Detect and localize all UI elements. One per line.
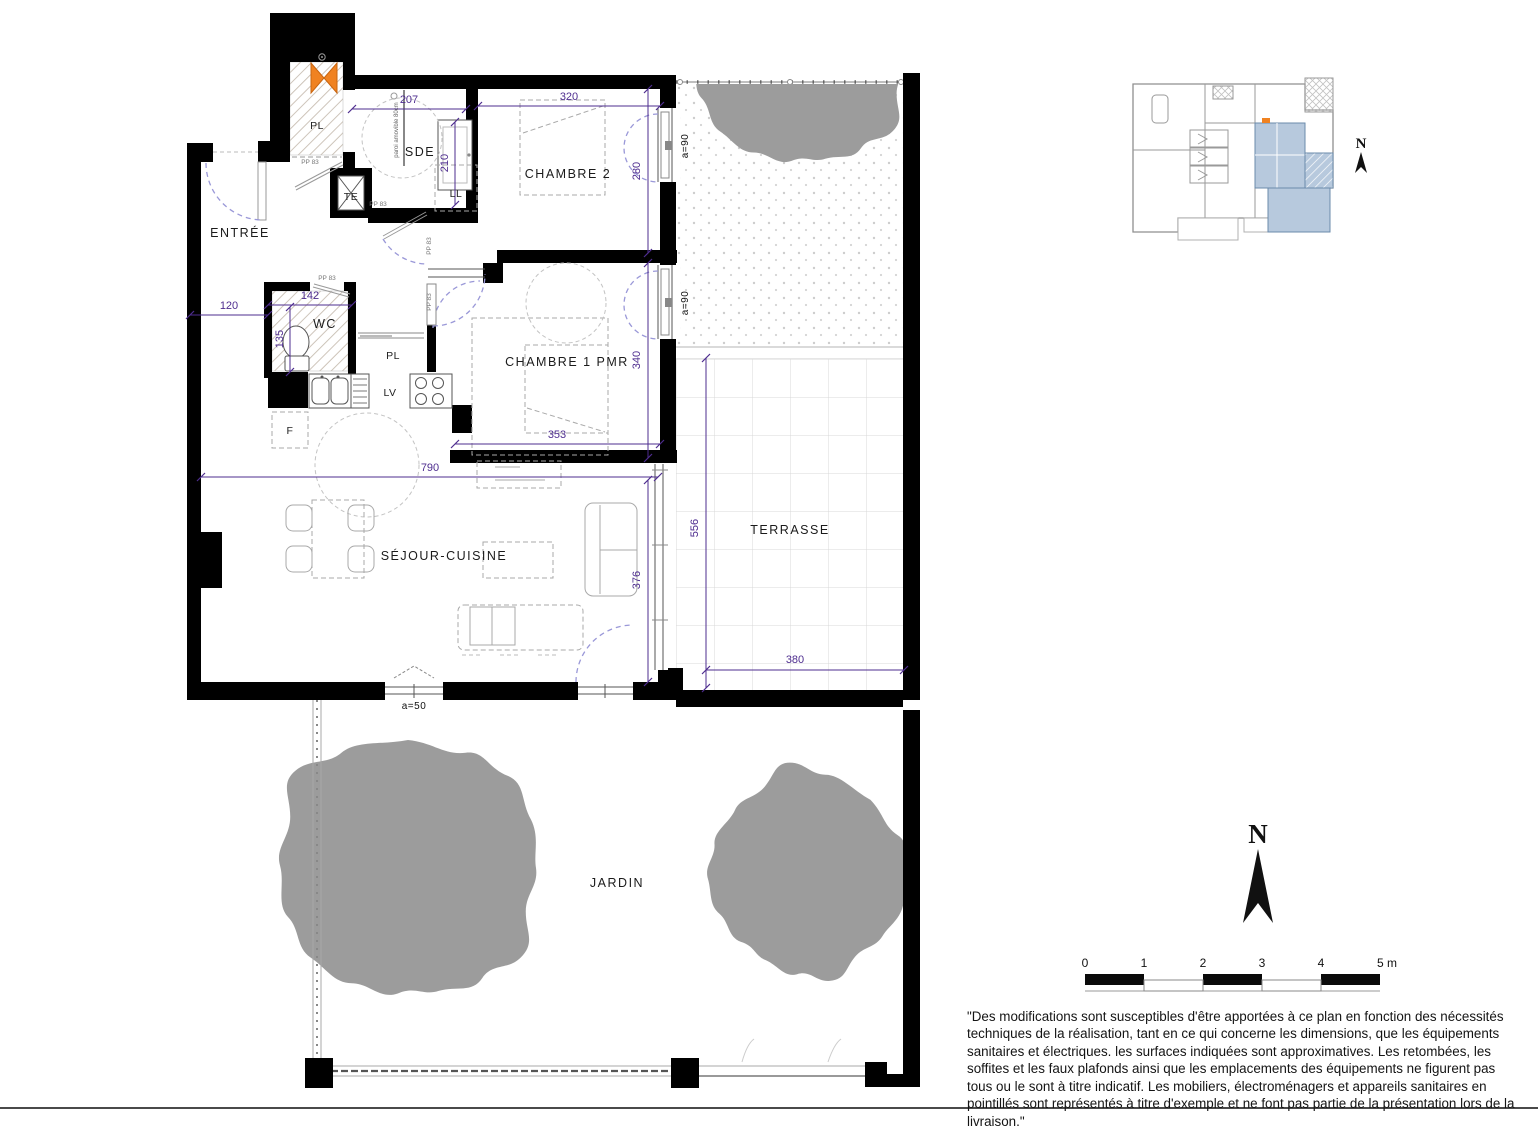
room-label-jardin: JARDIN <box>590 876 644 890</box>
door-label-pp83-pl: PP 83 <box>301 159 319 166</box>
scale-tick-0: 0 <box>1082 956 1089 970</box>
door-label-pp83-hall2: PP 83 <box>426 293 433 311</box>
tv-unit <box>477 461 561 488</box>
shower-clearance-circle <box>362 98 442 178</box>
dim-353: 353 <box>548 429 566 441</box>
sofa-right <box>585 503 637 596</box>
dim-320: 320 <box>560 91 578 103</box>
dim-207: 207 <box>400 94 418 106</box>
scale-tick-5: 5 m <box>1377 956 1397 970</box>
terrace-top-fence <box>676 80 904 85</box>
window-label-a50: a=50 <box>402 701 427 712</box>
dim-556: 556 <box>689 519 701 537</box>
fixture-label-pl1: PL <box>310 120 324 132</box>
stove <box>410 374 452 408</box>
toilet <box>283 326 309 371</box>
scale-bar: 0 1 2 3 4 5 m <box>1082 956 1397 991</box>
scale-tick-1: 1 <box>1141 956 1148 970</box>
fixture-label-f: F <box>287 425 294 437</box>
dim-135: 135 <box>274 330 286 348</box>
dim-376: 376 <box>631 571 643 589</box>
floor-plan-canvas: 207 320 280 210 340 353 790 376 120 142 … <box>0 0 1538 1120</box>
scale-tick-3: 3 <box>1259 956 1266 970</box>
window-garden-door <box>578 684 633 698</box>
door-label-pp83-wc: PP 83 <box>318 275 336 282</box>
dim-210: 210 <box>439 154 451 172</box>
sejour-clearance-circle <box>315 413 419 517</box>
room-label-terrasse: TERRASSE <box>750 523 829 537</box>
svg-text:N: N <box>1248 819 1268 849</box>
fixture-label-pl2: PL <box>386 350 400 362</box>
window-label-a90-2: a=90 <box>680 291 691 316</box>
fixture-label-paroi: paroi amovible 80cm <box>394 102 400 157</box>
window-label-a90-1: a=90 <box>680 134 691 159</box>
dim-142: 142 <box>301 290 319 302</box>
room-label-entree: ENTRÉE <box>210 225 270 240</box>
fixture-label-lv: LV <box>383 387 396 399</box>
bay-window <box>652 464 668 670</box>
door-label-pp83-sde: PP 83 <box>369 201 387 208</box>
door-label-pp83-hall1: PP 83 <box>426 237 433 255</box>
dim-120: 120 <box>220 300 238 312</box>
kitchen-sink <box>309 374 351 408</box>
dining-set <box>286 500 374 578</box>
north-arrow-icon: N <box>1243 819 1273 923</box>
keyplan: N <box>1133 78 1367 240</box>
fixture-label-te: TE <box>344 191 358 203</box>
room-label-chambre2: CHAMBRE 2 <box>525 167 611 181</box>
scale-tick-2: 2 <box>1200 956 1207 970</box>
dim-380: 380 <box>786 654 804 666</box>
kitchen-drainer <box>351 374 369 408</box>
svg-text:N: N <box>1356 136 1367 152</box>
room-label-chambre1: CHAMBRE 1 PMR <box>505 355 629 369</box>
scale-tick-4: 4 <box>1318 956 1325 970</box>
sofa-bottom <box>458 605 583 655</box>
dim-340: 340 <box>631 351 643 369</box>
window-a50 <box>385 666 443 698</box>
keyplan-north-arrow-icon: N <box>1355 136 1367 173</box>
room-label-sde: SDE <box>405 145 435 159</box>
doors <box>206 152 633 682</box>
room-label-sejour: SÉJOUR-CUISINE <box>381 548 508 563</box>
dim-280: 280 <box>631 162 643 180</box>
room-label-wc: WC <box>313 317 337 331</box>
fixture-label-ll: LL <box>450 188 463 200</box>
dim-790: 790 <box>421 462 439 474</box>
window-a90-2 <box>624 265 680 339</box>
disclaimer-text: "Des modifications sont susceptibles d'ê… <box>967 1008 1519 1130</box>
